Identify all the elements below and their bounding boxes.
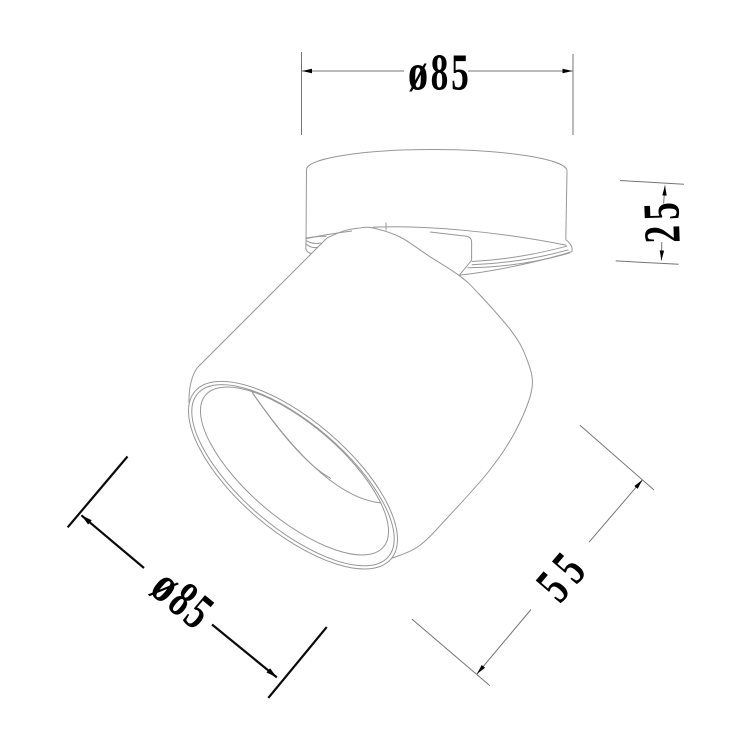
svg-text:5: 5 bbox=[632, 201, 691, 221]
svg-text:5: 5 bbox=[451, 43, 469, 101]
svg-text:ø: ø bbox=[408, 44, 428, 102]
svg-text:8: 8 bbox=[431, 43, 449, 101]
svg-text:2: 2 bbox=[632, 224, 691, 244]
